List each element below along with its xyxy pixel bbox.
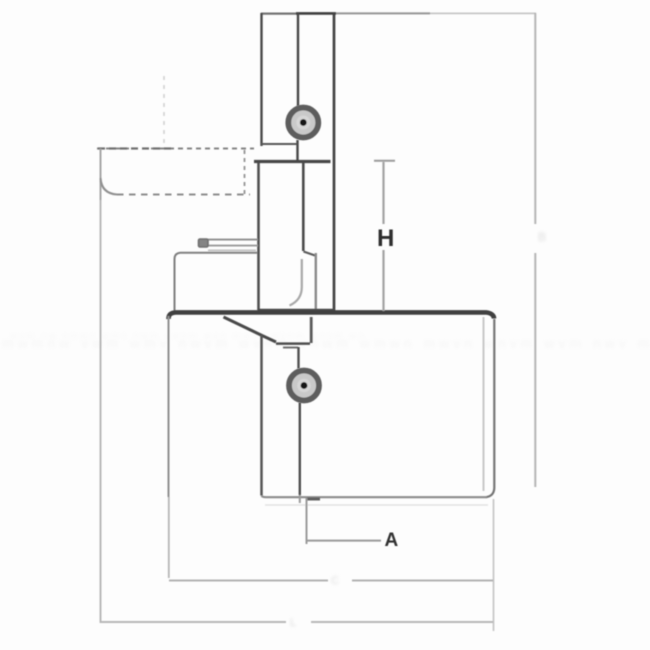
svg-text:B: B <box>538 230 546 244</box>
svg-text:A: A <box>385 530 399 551</box>
svg-text:L: L <box>290 617 296 629</box>
svg-text:H: H <box>377 225 394 252</box>
svg-text:C: C <box>331 575 339 587</box>
